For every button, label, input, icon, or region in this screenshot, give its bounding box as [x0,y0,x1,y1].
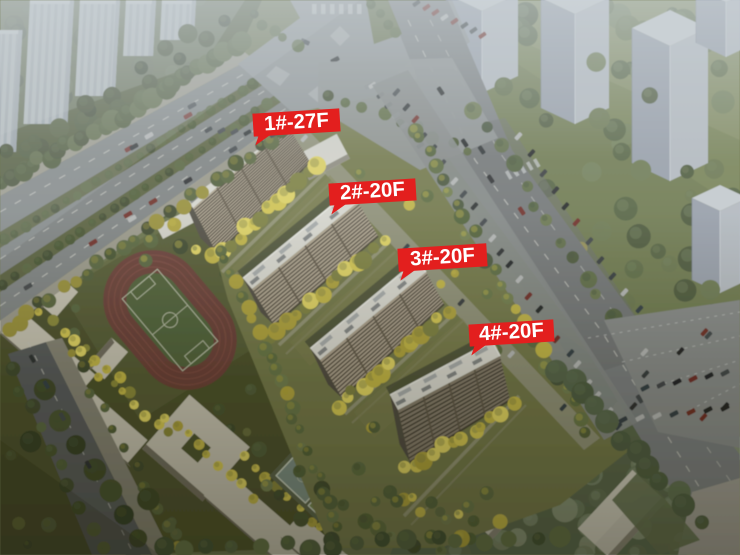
svg-text:2#-20F: 2#-20F [339,178,405,205]
svg-text:3#-20F: 3#-20F [409,244,475,271]
svg-text:1#-27F: 1#-27F [263,109,329,136]
svg-text:4#-20F: 4#-20F [478,319,544,346]
